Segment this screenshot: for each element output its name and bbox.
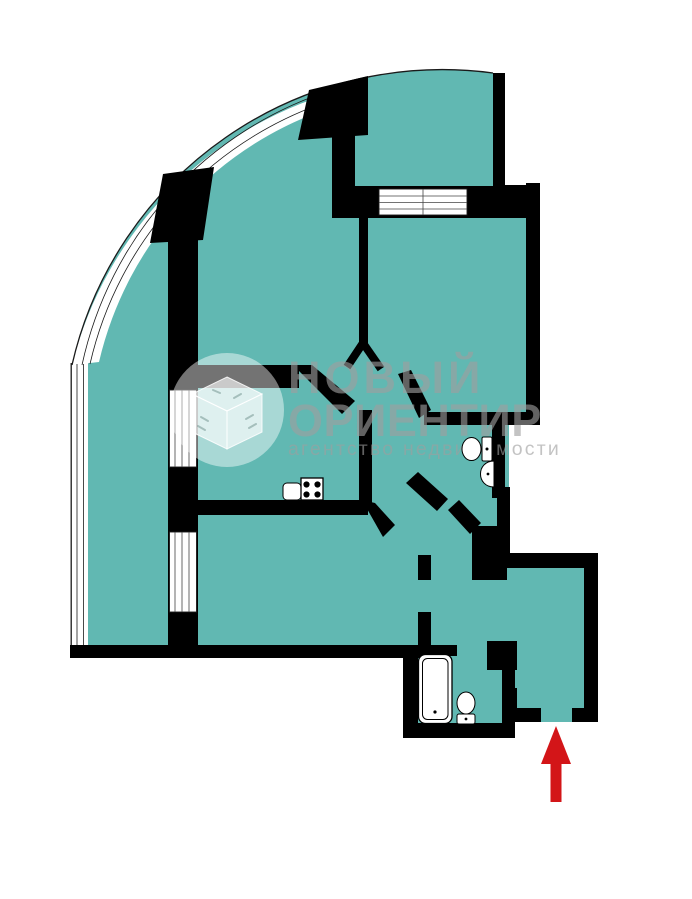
livingroom-right-stub: [418, 612, 431, 648]
right-outer-wall: [526, 183, 540, 425]
floorplan-svg: НОВЫЙ ОРИЕНТИР агентство недвижимости: [0, 0, 692, 899]
entry-bottom-wall-right: [572, 708, 598, 722]
toilet-icon: [462, 437, 492, 461]
entry-right-wall: [584, 553, 598, 722]
toiletroom-lower-right-wall: [497, 487, 510, 556]
bathtub-icon: [419, 655, 453, 724]
left-window-band: [70, 361, 88, 645]
toilet-2-icon: [457, 692, 475, 724]
entry-bottom-wall-left: [517, 708, 541, 722]
living-balcony-window: [170, 532, 197, 612]
kitchen-bottom-wall: [198, 500, 368, 515]
floorplan-canvas: НОВЫЙ ОРИЕНТИР агентство недвижимости: [0, 0, 692, 899]
partition-top-rooms: [359, 215, 368, 345]
bay-right-wall: [493, 73, 505, 193]
kitchen-sink-icon: [283, 483, 301, 500]
livingroom-right-pier: [418, 555, 431, 580]
watermark-subtitle: агентство недвижимости: [288, 438, 561, 460]
bathroom-bottom-wall: [403, 723, 515, 738]
bay-window: [379, 189, 467, 215]
entry-top-wall: [495, 553, 598, 568]
entrance-arrow: [541, 726, 571, 802]
stove-icon: [301, 478, 323, 500]
bottom-outer-wall: [70, 645, 420, 658]
